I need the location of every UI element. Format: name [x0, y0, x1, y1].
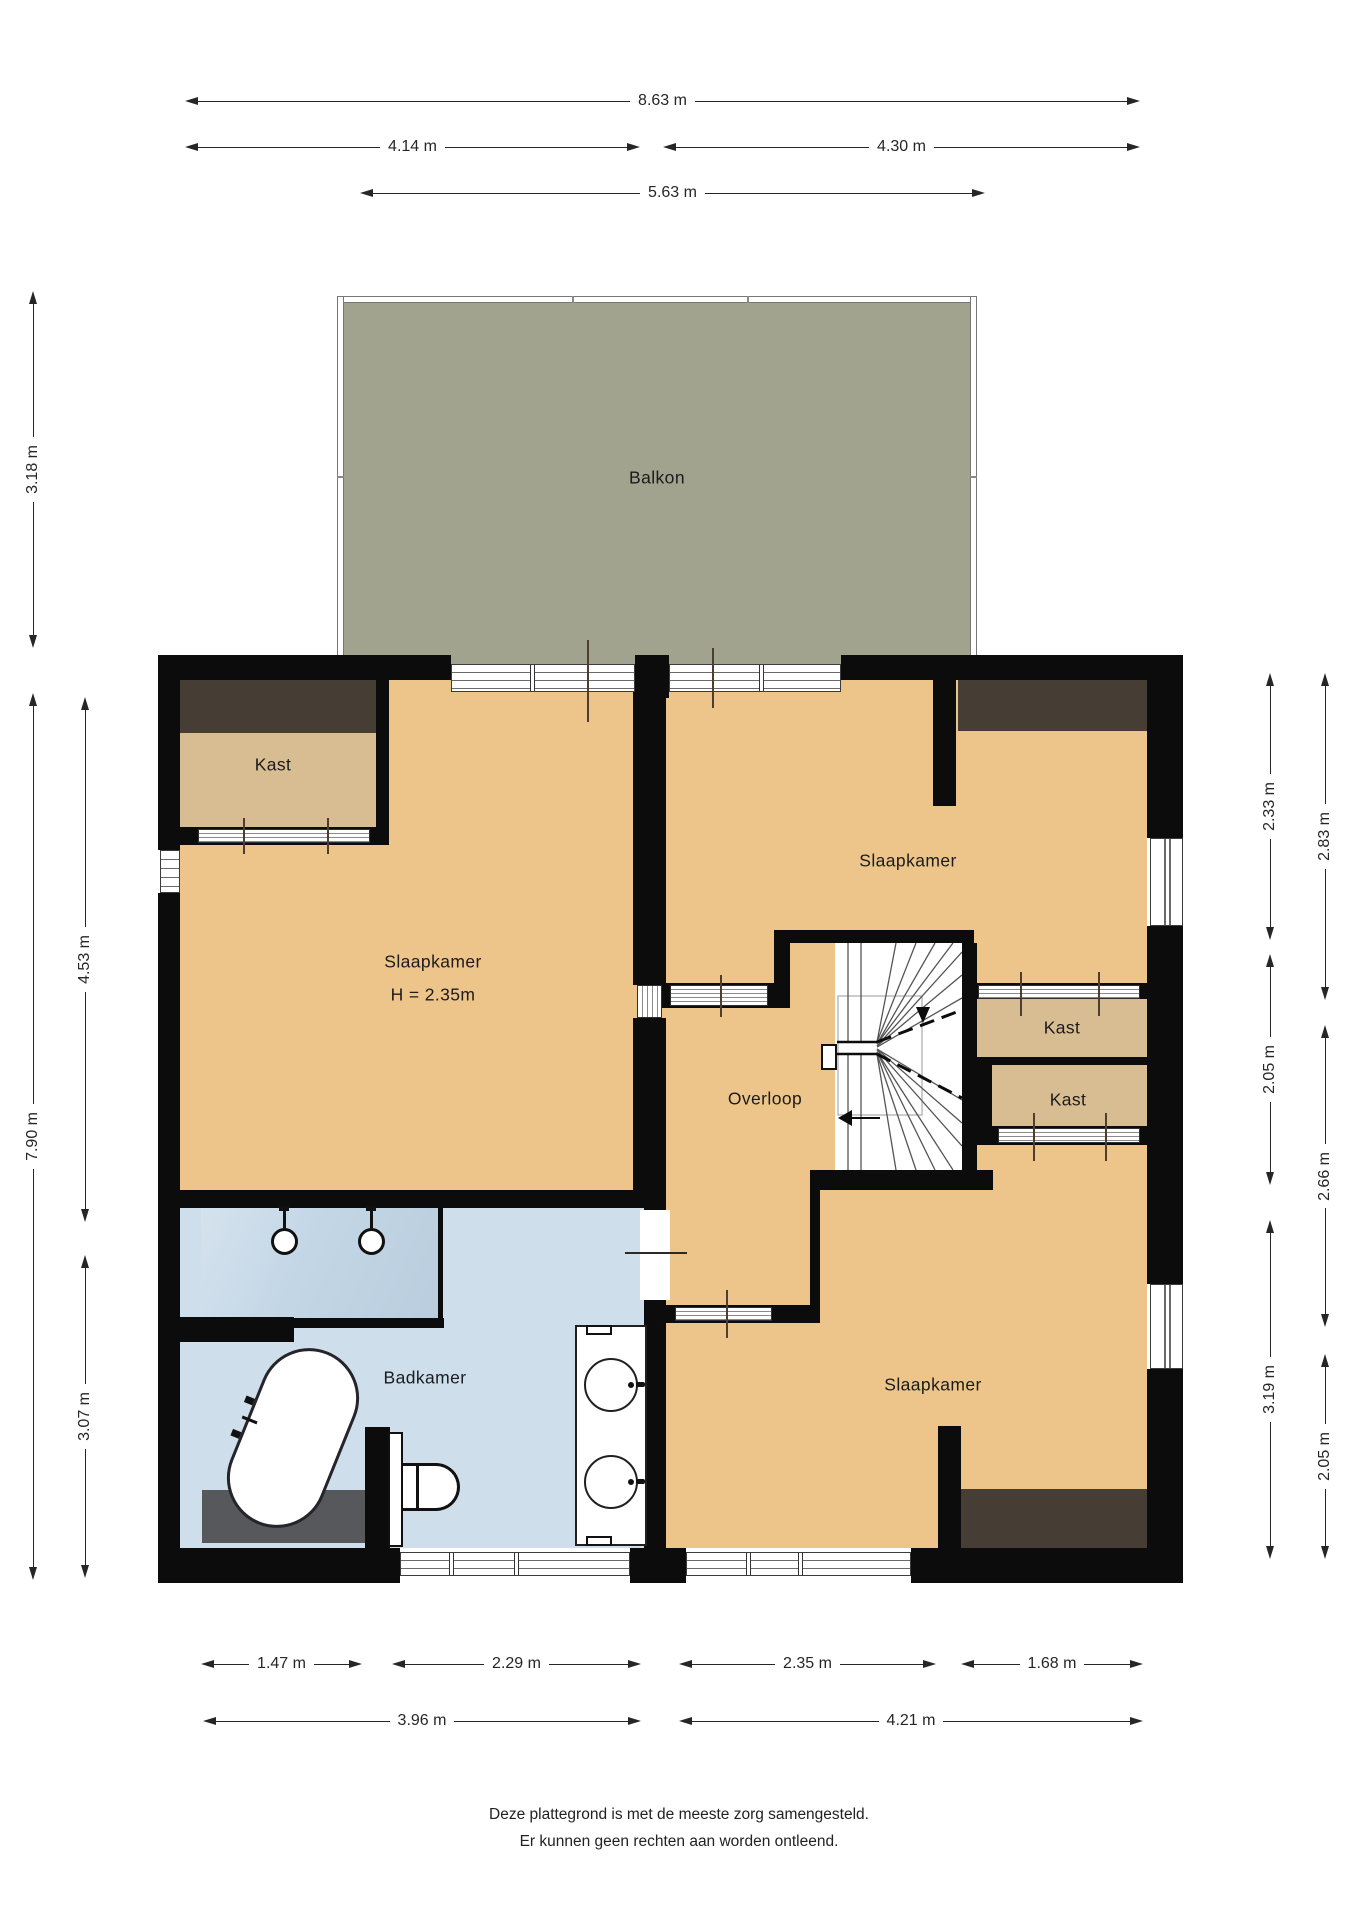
- window-mullion: [514, 1553, 519, 1575]
- dim-bottom-2: 2.29 m: [392, 1655, 641, 1673]
- balcony-railing-top: [337, 296, 977, 303]
- wall-bottom-b: [630, 1548, 686, 1583]
- wall-stair-north: [774, 930, 974, 943]
- dim-bottom-4: 1.68 m: [961, 1655, 1143, 1673]
- dim-balcony-depth: 3.18 m: [24, 291, 42, 648]
- room-label-overloop: Overloop: [728, 1089, 802, 1110]
- dim-right-outer-3: 2.05 m: [1316, 1354, 1334, 1559]
- balcony-railing-right: [970, 296, 977, 666]
- wall-shower-south-thin: [294, 1318, 444, 1328]
- wall-shower-south-thick: [180, 1317, 294, 1342]
- dim-width-right: 4.30 m: [663, 138, 1140, 156]
- stair-newel-post: [821, 1044, 837, 1070]
- shower-head: [271, 1228, 298, 1255]
- dim-bottom-3: 2.35 m: [679, 1655, 936, 1673]
- wall-closet-divider: [977, 1057, 1147, 1065]
- door-tick: [243, 818, 245, 854]
- toilet-bowl: [403, 1463, 460, 1511]
- door-tick: [720, 975, 722, 1017]
- door-tick: [1105, 1113, 1107, 1161]
- window-south-bathroom: [400, 1552, 630, 1576]
- dim-balcony-width: 5.63 m: [360, 184, 985, 202]
- wall-center-a: [633, 680, 666, 985]
- dim-bedroom-depth: 4.53 m: [76, 697, 94, 1222]
- dim-width-total: 8.63 m: [185, 92, 1140, 110]
- wall-center-b: [633, 1018, 666, 1190]
- wall-closet-r2-west: [977, 1057, 992, 1145]
- wardrobe-tl: [180, 677, 376, 733]
- wall-stair-east: [962, 943, 977, 1190]
- room-label-slaapkamer-bottomright: Slaapkamer: [884, 1375, 981, 1396]
- door-bedroom-topright: [670, 985, 768, 1006]
- wall-bathroom-east-b: [644, 1300, 666, 1548]
- vanity-fixture: [586, 1325, 612, 1335]
- window-mullion: [798, 1553, 803, 1575]
- wall-bathroom-east-a: [644, 1190, 666, 1210]
- window-mullion: [759, 665, 764, 691]
- door-closet-r2: [998, 1128, 1140, 1143]
- railing-joint: [970, 476, 977, 478]
- dim-house-depth: 7.90 m: [24, 693, 42, 1580]
- dim-right-outer-1: 2.83 m: [1316, 673, 1334, 1000]
- disclaimer-line-1: Deze plattegrond is met de meeste zorg s…: [0, 1806, 1358, 1824]
- wall-right-b: [1147, 926, 1183, 1284]
- wardrobe-tr: [958, 677, 1147, 731]
- wall-stub-tr: [933, 680, 956, 806]
- room-label-badkamer: Badkamer: [384, 1368, 467, 1389]
- wall-left-a: [158, 655, 180, 850]
- room-label-slaapkamer-topright: Slaapkamer: [859, 851, 956, 872]
- wall-left-b: [158, 893, 180, 1583]
- window-south-bedroom: [686, 1552, 911, 1576]
- room-label-height-note: H = 2.35m: [391, 985, 476, 1006]
- room-label-balkon: Balkon: [629, 468, 685, 489]
- balcony-railing-left: [337, 296, 344, 666]
- door-tick: [1098, 972, 1100, 1016]
- window-mullion: [530, 665, 535, 691]
- dim-width-left: 4.14 m: [185, 138, 640, 156]
- window-tick: [587, 640, 589, 722]
- window-tick: [712, 648, 714, 708]
- vanity-fixture: [586, 1536, 612, 1546]
- door-tick: [1033, 1113, 1035, 1161]
- toilet-cistern: [388, 1432, 403, 1547]
- shower-area: [201, 1208, 438, 1318]
- sink-drain: [628, 1382, 634, 1388]
- wall-top-a: [158, 655, 451, 680]
- floorplan-canvas: Balkon Kast Slaapkamer H = 2.35m Slaapka…: [0, 0, 1358, 1920]
- dim-bottom-total-left: 3.96 m: [203, 1712, 641, 1730]
- door-closet-tl: [198, 829, 370, 843]
- room-label-kast-r2: Kast: [1050, 1090, 1087, 1111]
- sink-drain: [628, 1479, 634, 1485]
- toilet-seat-line: [416, 1465, 419, 1509]
- shower-head-stem: [283, 1210, 286, 1230]
- door-bedroom-bottomright: [675, 1307, 772, 1321]
- dim-bathroom-depth: 3.07 m: [76, 1255, 94, 1578]
- window-balcony-left: [451, 664, 635, 692]
- dim-bottom-total-right: 4.21 m: [679, 1712, 1143, 1730]
- dim-bottom-1: 1.47 m: [201, 1655, 362, 1673]
- door-bedroom-left: [637, 985, 662, 1018]
- window-east-bottom: [1150, 1284, 1183, 1369]
- wall-shower-east: [438, 1208, 443, 1328]
- shower-head-stem: [370, 1210, 373, 1230]
- sink-faucet: [636, 1479, 645, 1484]
- dim-right-inner-2: 2.05 m: [1261, 954, 1279, 1185]
- dim-right-inner-3: 3.19 m: [1261, 1220, 1279, 1559]
- wall-stair-south: [810, 1170, 993, 1190]
- wall-closet-tl-east: [376, 680, 389, 845]
- door-tick: [327, 818, 329, 854]
- door-tick: [726, 1290, 728, 1338]
- railing-joint: [747, 296, 749, 303]
- wall-bottom-a: [158, 1548, 400, 1583]
- disclaimer-line-2: Er kunnen geen rechten aan worden ontlee…: [0, 1833, 1358, 1851]
- wall-bathroom-north: [158, 1190, 666, 1208]
- window-mullion: [449, 1553, 454, 1575]
- shower-head-mount: [279, 1206, 289, 1211]
- room-label-kast-tl: Kast: [255, 755, 292, 776]
- wall-bottom-c: [911, 1548, 1183, 1583]
- window-west: [160, 850, 180, 893]
- railing-joint: [337, 476, 344, 478]
- dim-right-inner-1: 2.33 m: [1261, 673, 1279, 940]
- wall-overloop-east: [810, 1190, 820, 1323]
- door-bathroom-tick: [625, 1252, 687, 1254]
- dim-right-outer-2: 2.66 m: [1316, 1025, 1334, 1327]
- wall-wardrobe-br-stub: [938, 1426, 961, 1548]
- window-east-top: [1150, 838, 1183, 926]
- window-balcony-right: [669, 664, 841, 692]
- railing-joint: [572, 296, 574, 303]
- shower-head: [358, 1228, 385, 1255]
- door-tick: [1020, 972, 1022, 1016]
- room-label-slaapkamer-left: Slaapkamer: [384, 952, 481, 973]
- window-mullion: [746, 1553, 751, 1575]
- wardrobe-br: [961, 1489, 1147, 1548]
- wall-toilet-stub: [365, 1427, 390, 1548]
- wall-right-a: [1147, 655, 1183, 838]
- shower-head-mount: [366, 1206, 376, 1211]
- sink-faucet: [636, 1382, 645, 1387]
- door-bathroom-opening: [640, 1210, 670, 1300]
- room-label-kast-r1: Kast: [1044, 1018, 1081, 1039]
- wall-top-b: [841, 655, 1183, 680]
- door-closet-r1: [978, 985, 1140, 999]
